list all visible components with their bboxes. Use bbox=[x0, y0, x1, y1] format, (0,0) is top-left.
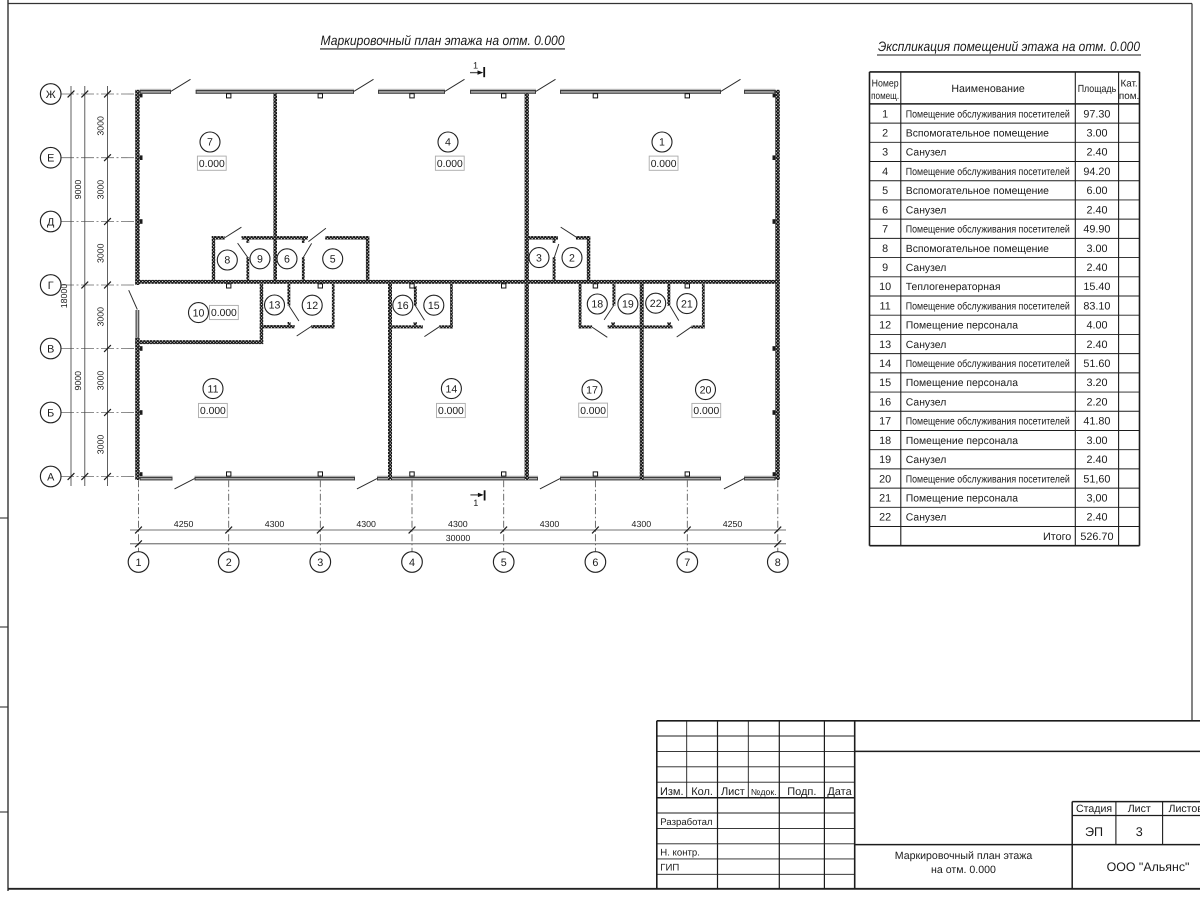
svg-text:ООО "Альянс": ООО "Альянс" bbox=[1107, 860, 1190, 874]
svg-text:20: 20 bbox=[700, 384, 712, 396]
svg-text:526.70: 526.70 bbox=[1080, 531, 1113, 543]
svg-text:17: 17 bbox=[586, 385, 598, 397]
svg-text:Помещение обслуживания посетит: Помещение обслуживания посетителей bbox=[906, 301, 1070, 312]
svg-text:9: 9 bbox=[882, 262, 888, 274]
svg-text:5: 5 bbox=[501, 557, 507, 569]
svg-text:7: 7 bbox=[207, 137, 213, 149]
svg-text:11: 11 bbox=[880, 300, 891, 312]
svg-text:помещ.: помещ. bbox=[871, 91, 899, 102]
svg-text:17: 17 bbox=[879, 416, 891, 428]
svg-text:Вспомогательное помещение: Вспомогательное помещение bbox=[906, 186, 1049, 197]
svg-text:0.000: 0.000 bbox=[693, 406, 719, 417]
svg-text:Номер: Номер bbox=[872, 79, 899, 90]
svg-text:3.00: 3.00 bbox=[1086, 128, 1107, 140]
svg-text:18: 18 bbox=[591, 299, 603, 311]
svg-text:Экспликация помещений этажа на: Экспликация помещений этажа на отм. 0.00… bbox=[878, 39, 1140, 54]
svg-text:Кат.: Кат. bbox=[1120, 79, 1137, 90]
svg-text:11: 11 bbox=[208, 383, 219, 395]
svg-text:Д: Д bbox=[47, 216, 55, 228]
svg-text:3: 3 bbox=[1136, 825, 1143, 839]
svg-text:2.40: 2.40 bbox=[1086, 339, 1107, 351]
svg-text:4300: 4300 bbox=[356, 519, 376, 529]
svg-text:Итого: Итого bbox=[1043, 531, 1071, 543]
svg-text:Помещение персонала: Помещение персонала bbox=[906, 494, 1018, 505]
svg-text:Санузел: Санузел bbox=[906, 340, 946, 351]
svg-text:51.60: 51.60 bbox=[1083, 358, 1110, 370]
svg-text:0.000: 0.000 bbox=[438, 406, 464, 417]
svg-text:12: 12 bbox=[306, 300, 318, 312]
svg-text:Помещение обслуживания посетит: Помещение обслуживания посетителей bbox=[906, 359, 1070, 370]
svg-text:3000: 3000 bbox=[96, 180, 106, 200]
svg-text:Ж: Ж bbox=[46, 89, 56, 101]
svg-text:3000: 3000 bbox=[96, 243, 106, 263]
svg-text:1: 1 bbox=[473, 60, 478, 70]
svg-text:9000: 9000 bbox=[73, 371, 83, 391]
svg-text:2.40: 2.40 bbox=[1086, 147, 1107, 159]
svg-text:1: 1 bbox=[659, 137, 665, 149]
svg-text:8: 8 bbox=[882, 243, 888, 255]
svg-text:Санузел: Санузел bbox=[906, 205, 946, 216]
svg-text:Маркировочный план этажа: Маркировочный план этажа bbox=[895, 850, 1033, 862]
svg-text:1: 1 bbox=[135, 557, 141, 569]
svg-text:Теплогенераторная: Теплогенераторная bbox=[906, 282, 1001, 293]
svg-text:Б: Б bbox=[47, 407, 54, 419]
svg-text:4250: 4250 bbox=[174, 519, 194, 529]
svg-text:Е: Е bbox=[47, 153, 54, 165]
svg-text:0.000: 0.000 bbox=[211, 308, 237, 319]
svg-text:13: 13 bbox=[879, 339, 891, 351]
svg-text:Площадь: Площадь bbox=[1078, 84, 1117, 95]
svg-text:3.00: 3.00 bbox=[1086, 435, 1107, 447]
svg-text:6: 6 bbox=[882, 204, 888, 216]
svg-text:15: 15 bbox=[879, 377, 891, 389]
svg-text:41.80: 41.80 bbox=[1083, 416, 1110, 428]
svg-text:Изм.: Изм. bbox=[660, 786, 684, 798]
svg-text:83.10: 83.10 bbox=[1083, 300, 1110, 312]
svg-text:3000: 3000 bbox=[96, 307, 106, 327]
svg-text:Вспомогательное помещение: Вспомогательное помещение bbox=[906, 129, 1049, 140]
svg-text:5: 5 bbox=[330, 254, 336, 266]
svg-text:2.40: 2.40 bbox=[1086, 262, 1107, 274]
svg-text:4: 4 bbox=[445, 137, 451, 149]
svg-text:2: 2 bbox=[882, 128, 888, 140]
svg-text:30000: 30000 bbox=[446, 533, 471, 543]
svg-text:14: 14 bbox=[879, 358, 891, 370]
svg-text:Г: Г bbox=[48, 280, 54, 292]
svg-text:0.000: 0.000 bbox=[200, 406, 226, 417]
svg-text:6: 6 bbox=[284, 254, 290, 266]
svg-text:2.20: 2.20 bbox=[1086, 396, 1107, 408]
svg-text:10: 10 bbox=[193, 307, 205, 319]
svg-text:2.40: 2.40 bbox=[1086, 454, 1107, 466]
svg-text:3: 3 bbox=[882, 147, 888, 159]
svg-text:3000: 3000 bbox=[96, 116, 106, 136]
svg-text:4: 4 bbox=[882, 166, 888, 178]
svg-text:на отм. 0.000: на отм. 0.000 bbox=[931, 864, 996, 876]
svg-text:0.000: 0.000 bbox=[437, 159, 463, 170]
svg-text:2: 2 bbox=[226, 557, 232, 569]
svg-text:Разработал: Разработал bbox=[660, 817, 712, 828]
svg-text:21: 21 bbox=[681, 298, 693, 310]
svg-text:21: 21 bbox=[879, 493, 891, 505]
svg-text:4300: 4300 bbox=[265, 519, 285, 529]
svg-text:10: 10 bbox=[879, 281, 891, 293]
svg-text:7: 7 bbox=[882, 224, 888, 236]
svg-text:15: 15 bbox=[428, 300, 440, 312]
svg-text:19: 19 bbox=[622, 299, 634, 311]
svg-text:Санузел: Санузел bbox=[906, 148, 946, 159]
svg-text:Помещение обслуживания посетит: Помещение обслуживания посетителей bbox=[906, 225, 1070, 236]
svg-text:пом.: пом. bbox=[1119, 91, 1139, 102]
svg-text:8: 8 bbox=[775, 557, 781, 569]
svg-text:22: 22 bbox=[879, 512, 891, 524]
svg-text:2.40: 2.40 bbox=[1086, 204, 1107, 216]
svg-text:Санузел: Санузел bbox=[906, 455, 946, 466]
svg-text:А: А bbox=[47, 471, 55, 483]
svg-text:13: 13 bbox=[269, 300, 281, 312]
svg-text:16: 16 bbox=[879, 396, 891, 408]
svg-text:Помещение обслуживания посетит: Помещение обслуживания посетителей bbox=[906, 167, 1070, 178]
svg-text:4300: 4300 bbox=[448, 519, 468, 529]
svg-text:3.20: 3.20 bbox=[1086, 377, 1107, 389]
svg-text:0.000: 0.000 bbox=[199, 159, 225, 170]
svg-text:5: 5 bbox=[882, 185, 888, 197]
svg-text:8: 8 bbox=[224, 255, 230, 267]
svg-text:Листов: Листов bbox=[1169, 803, 1200, 815]
svg-text:Помещение обслуживания посетит: Помещение обслуживания посетителей bbox=[906, 474, 1070, 485]
svg-text:4300: 4300 bbox=[540, 519, 560, 529]
svg-text:18000: 18000 bbox=[59, 284, 69, 309]
svg-text:Помещение персонала: Помещение персонала bbox=[906, 436, 1018, 447]
svg-text:1: 1 bbox=[473, 498, 478, 508]
svg-text:Помещение персонала: Помещение персонала bbox=[906, 378, 1018, 389]
svg-text:3000: 3000 bbox=[96, 371, 106, 391]
svg-text:94.20: 94.20 bbox=[1083, 166, 1110, 178]
svg-text:0.000: 0.000 bbox=[580, 406, 606, 417]
svg-text:1: 1 bbox=[882, 108, 888, 120]
svg-text:Лист: Лист bbox=[721, 786, 745, 798]
svg-text:20: 20 bbox=[879, 473, 891, 485]
svg-text:Кол.: Кол. bbox=[691, 786, 713, 798]
svg-text:14: 14 bbox=[446, 383, 458, 395]
svg-text:4300: 4300 bbox=[632, 519, 652, 529]
svg-text:3,00: 3,00 bbox=[1086, 493, 1107, 505]
svg-text:9: 9 bbox=[257, 254, 263, 266]
svg-text:2: 2 bbox=[569, 252, 575, 264]
svg-text:22: 22 bbox=[650, 298, 662, 310]
svg-text:16: 16 bbox=[397, 300, 409, 312]
svg-text:49.90: 49.90 bbox=[1083, 224, 1110, 236]
svg-text:Лист: Лист bbox=[1128, 803, 1151, 815]
svg-text:Помещение обслуживания посетит: Помещение обслуживания посетителей bbox=[906, 109, 1070, 120]
svg-text:9000: 9000 bbox=[73, 180, 83, 200]
svg-text:Помещение обслуживания посетит: Помещение обслуживания посетителей bbox=[906, 417, 1070, 428]
svg-text:Санузел: Санузел bbox=[906, 513, 946, 524]
svg-text:Стадия: Стадия bbox=[1076, 803, 1112, 815]
svg-text:Вспомогательное помещение: Вспомогательное помещение bbox=[906, 244, 1049, 255]
svg-text:12: 12 bbox=[879, 320, 891, 332]
svg-text:Санузел: Санузел bbox=[906, 397, 946, 408]
svg-text:4: 4 bbox=[409, 557, 415, 569]
svg-text:4250: 4250 bbox=[723, 519, 743, 529]
svg-text:97.30: 97.30 bbox=[1083, 108, 1110, 120]
svg-text:ЭП: ЭП bbox=[1085, 825, 1103, 839]
svg-text:Наименование: Наименование bbox=[951, 83, 1025, 95]
svg-text:2.40: 2.40 bbox=[1086, 512, 1107, 524]
svg-text:Дата: Дата bbox=[827, 786, 852, 798]
svg-text:7: 7 bbox=[684, 557, 690, 569]
svg-text:Н. контр.: Н. контр. bbox=[660, 848, 700, 859]
svg-text:№док.: №док. bbox=[751, 787, 777, 797]
svg-text:3: 3 bbox=[536, 252, 542, 264]
svg-text:ГИП: ГИП bbox=[660, 863, 679, 874]
svg-text:3.00: 3.00 bbox=[1086, 243, 1107, 255]
svg-text:0.000: 0.000 bbox=[651, 159, 677, 170]
svg-text:15.40: 15.40 bbox=[1083, 281, 1110, 293]
svg-text:19: 19 bbox=[879, 454, 891, 466]
svg-text:51,60: 51,60 bbox=[1083, 473, 1110, 485]
svg-text:В: В bbox=[47, 343, 54, 355]
svg-text:Подп.: Подп. bbox=[787, 786, 816, 798]
svg-text:Маркировочный план этажа на от: Маркировочный план этажа на отм. 0.000 bbox=[321, 33, 565, 48]
svg-text:Помещение персонала: Помещение персонала bbox=[906, 321, 1018, 332]
svg-text:3: 3 bbox=[317, 557, 323, 569]
svg-text:3000: 3000 bbox=[96, 435, 106, 455]
svg-text:18: 18 bbox=[879, 435, 891, 447]
svg-text:6: 6 bbox=[592, 557, 598, 569]
svg-text:Санузел: Санузел bbox=[906, 263, 946, 274]
svg-text:6.00: 6.00 bbox=[1086, 185, 1107, 197]
svg-text:4.00: 4.00 bbox=[1086, 320, 1107, 332]
